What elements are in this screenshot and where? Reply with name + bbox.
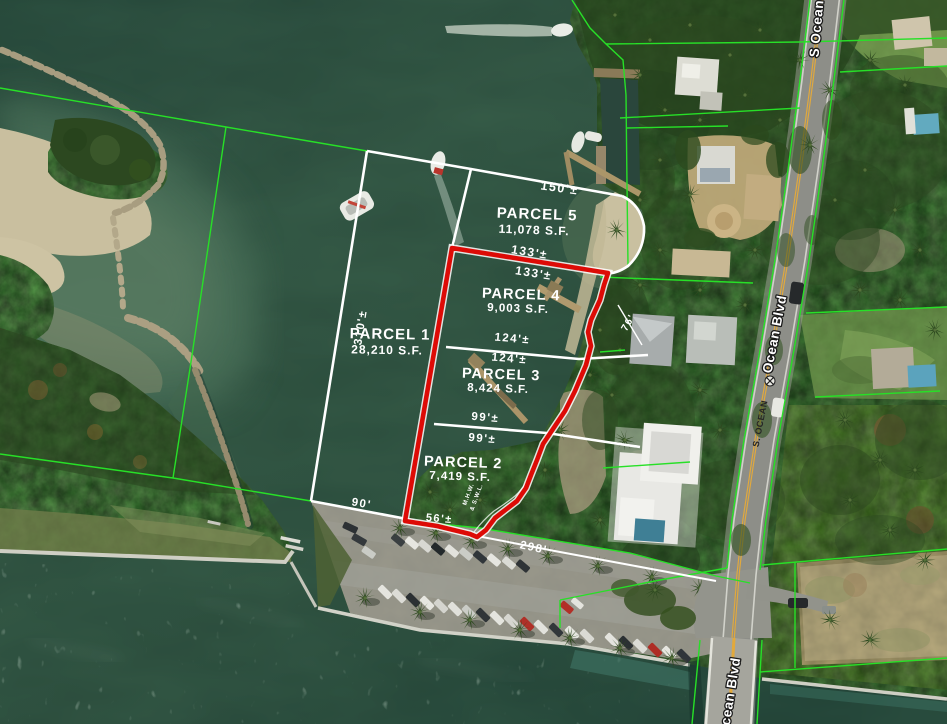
svg-text:11,078 S.F.: 11,078 S.F.: [498, 222, 569, 238]
svg-text:7,419 S.F.: 7,419 S.F.: [429, 470, 491, 484]
svg-text:8,424 S.F.: 8,424 S.F.: [467, 382, 529, 396]
svg-text:9,003 S.F.: 9,003 S.F.: [487, 302, 549, 316]
svg-text:99'±: 99'±: [468, 432, 497, 446]
svg-text:99'±: 99'±: [471, 411, 500, 425]
svg-text:56'±: 56'±: [425, 512, 453, 526]
